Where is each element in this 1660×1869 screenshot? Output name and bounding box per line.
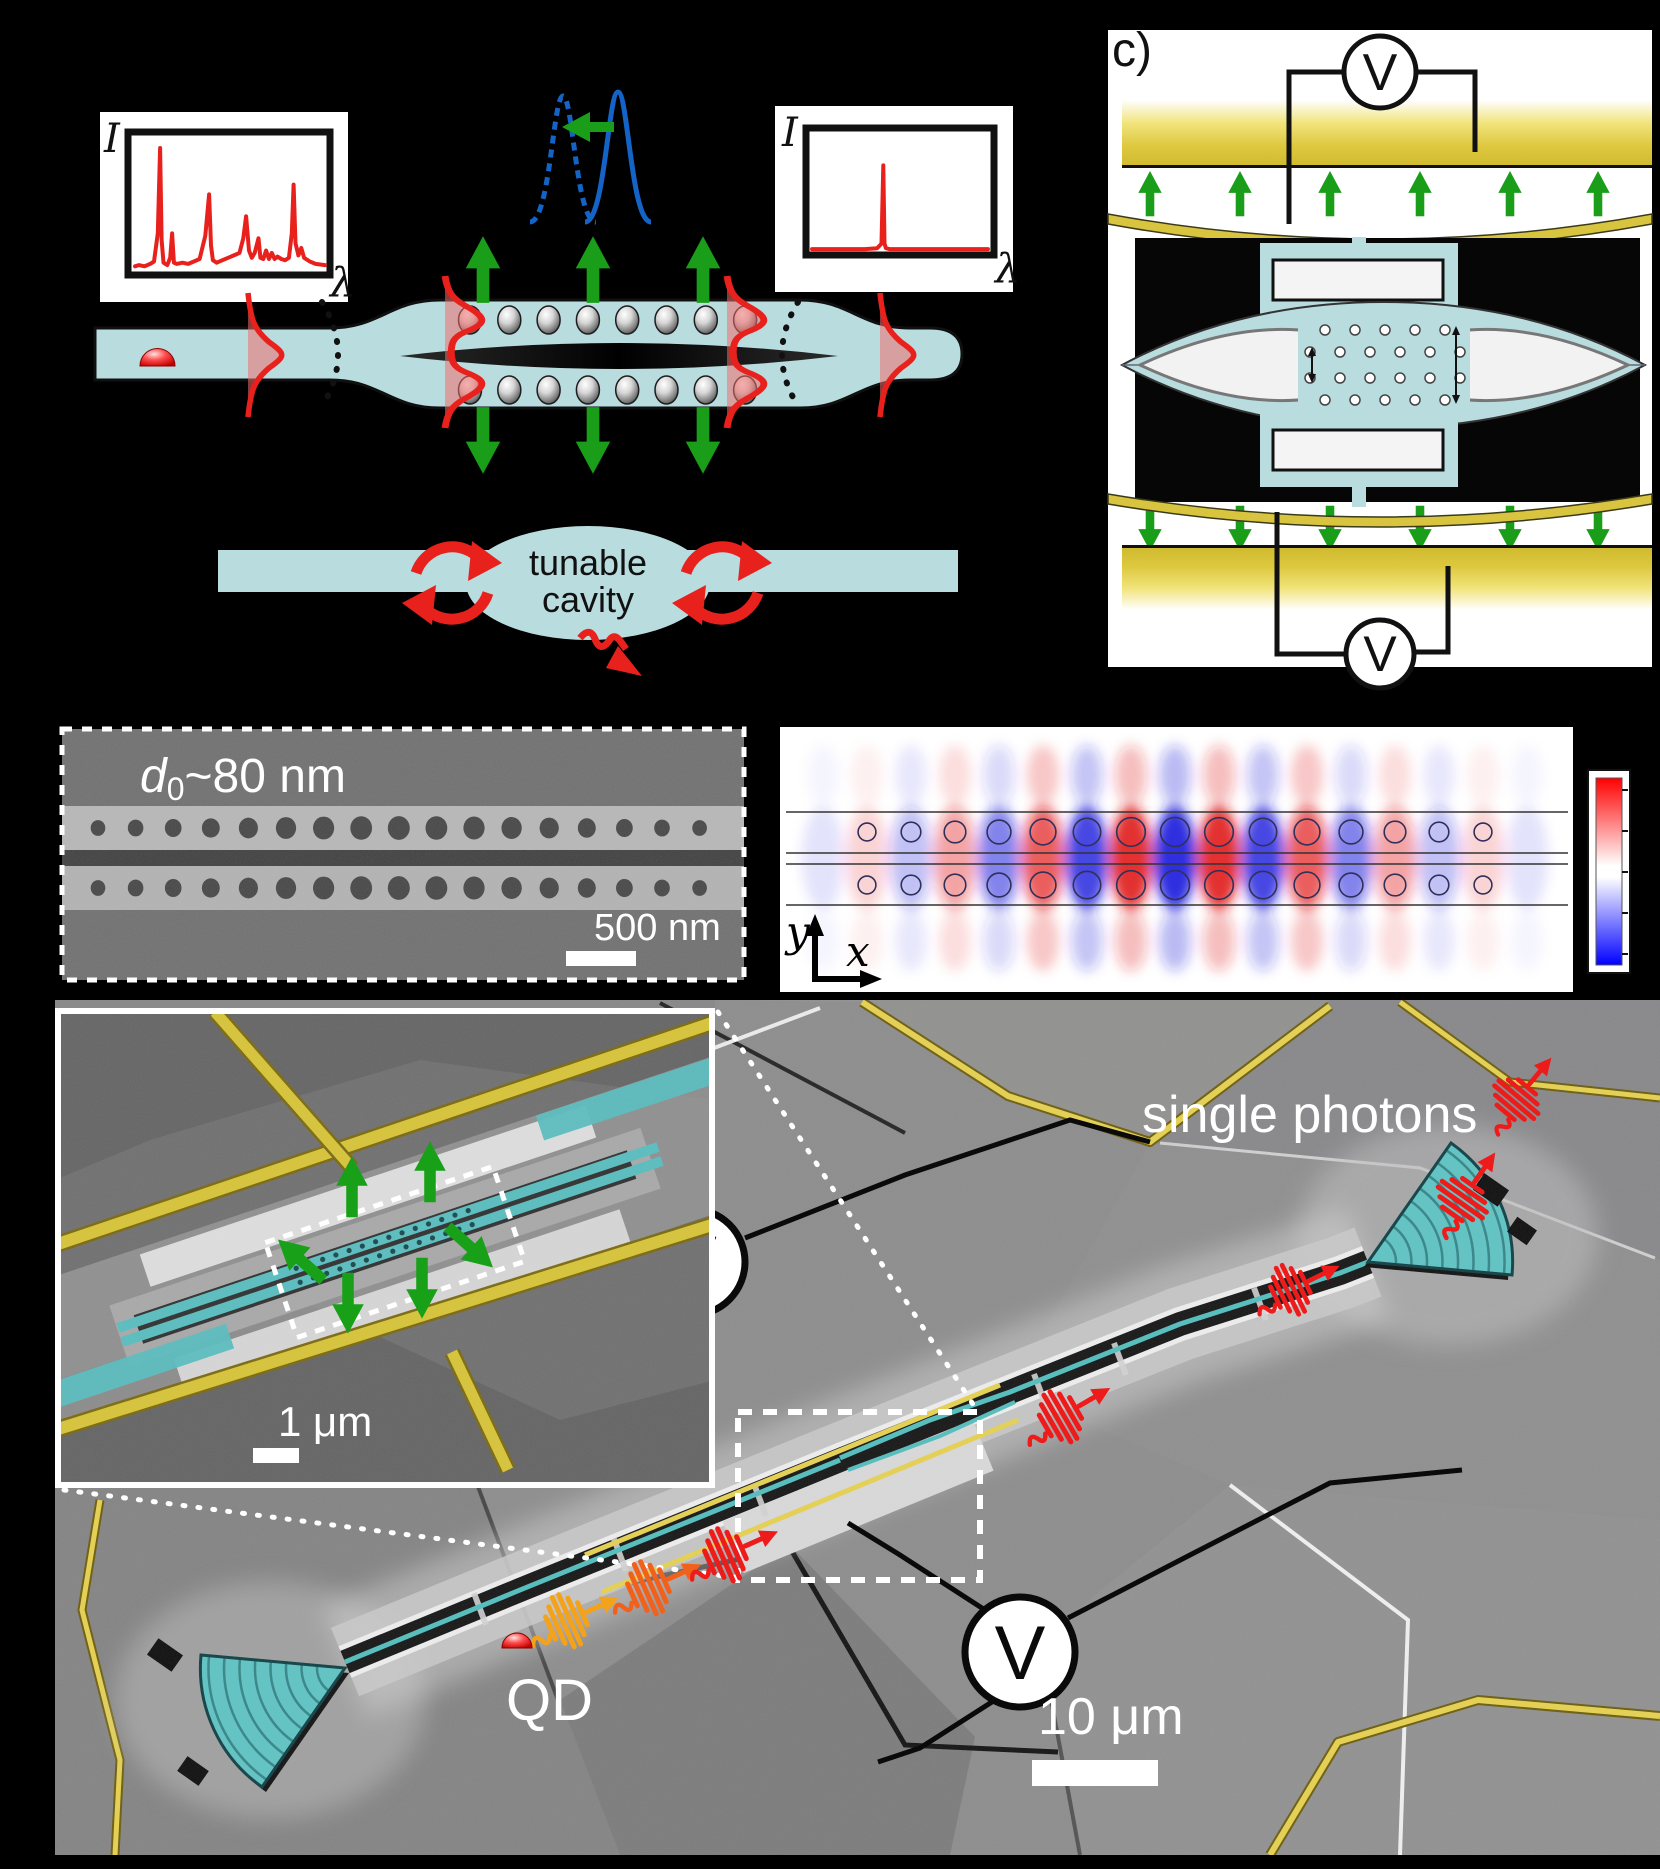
voltmeter-label: V <box>1363 44 1398 102</box>
scale-bar-label: 1 μm <box>278 1398 372 1445</box>
tuning-peaks <box>530 92 651 222</box>
mode-envelope-input <box>248 293 282 417</box>
gap-symbol: d <box>140 750 168 803</box>
electrode-edge <box>1122 545 1652 548</box>
left-spectrum-ylabel: I <box>103 116 121 162</box>
y-axis-label: y <box>784 907 811 956</box>
scale-bar <box>1032 1760 1158 1786</box>
bottom-shuttle-plate <box>1273 430 1443 470</box>
right-spectrum-ylabel: I <box>781 110 799 156</box>
field-lobes <box>802 745 1548 971</box>
qd-label: QD <box>506 1668 593 1733</box>
gap-value: ~80 nm <box>185 750 346 803</box>
gap-subscript: 0 <box>167 771 185 807</box>
colorbar <box>1588 770 1630 973</box>
voltmeter-icon: V <box>1346 620 1414 688</box>
scale-bar <box>566 951 636 966</box>
panel-d-sem-closeup: d0~80 nm 500 nm <box>62 729 744 980</box>
figure-canvas: I λ I λ <box>0 0 1660 1869</box>
panel-c-label: c) <box>1112 24 1152 77</box>
figure-svg: I λ I λ <box>0 0 1660 1869</box>
panel-c-mechanism: c) V V <box>1108 24 1652 688</box>
voltmeter-label: V <box>995 1611 1046 1696</box>
tunable-cavity-diagram: tunable cavity <box>218 526 958 676</box>
panel-a-schematic: I λ I λ <box>90 92 1020 676</box>
voltmeter-icon: V <box>1344 36 1416 108</box>
single-photons-label: single photons <box>1142 1086 1477 1144</box>
panel-f-inset: 1 μm <box>0 1010 788 1486</box>
scale-bar-label: 500 nm <box>594 907 721 949</box>
spectrum-frame <box>806 128 994 255</box>
top-shuttle-plate <box>1273 260 1443 300</box>
cavity-bubble-label-1: tunable <box>529 542 647 583</box>
scale-bar-label: 10 μm <box>1038 1688 1184 1746</box>
top-gold-electrode <box>1122 100 1652 166</box>
right-spectrum-xlabel: λ <box>993 246 1020 292</box>
cavity-bubble-label-2: cavity <box>542 579 634 620</box>
mode-envelope-output <box>880 293 914 417</box>
voltmeter-label: V <box>1363 626 1397 682</box>
x-axis-label: x <box>846 927 870 976</box>
filtered-spectrum-inset: I λ <box>775 106 1020 292</box>
electrode-edge <box>1122 165 1652 168</box>
emission-spectrum-inset: I λ <box>100 112 355 306</box>
bottom-stem <box>1352 485 1366 507</box>
panel-e-mode-simulation: y x <box>780 727 1630 992</box>
bottom-gold-electrode <box>1122 548 1652 610</box>
cavity-peak-solid <box>585 92 651 222</box>
scale-bar <box>253 1448 299 1463</box>
left-spectrum-xlabel: λ <box>328 260 355 306</box>
